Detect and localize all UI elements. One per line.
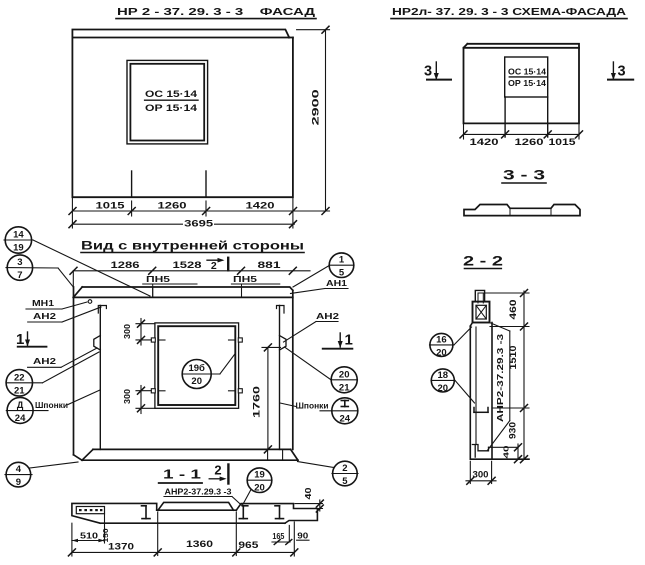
svg-text:Шпонки: Шпонки <box>296 401 329 411</box>
svg-text:ОС 15·14: ОС 15·14 <box>145 89 198 100</box>
svg-text:ПН5: ПН5 <box>233 274 257 284</box>
svg-text:21: 21 <box>14 385 25 396</box>
svg-text:3695: 3695 <box>184 219 214 230</box>
svg-text:20: 20 <box>254 483 265 494</box>
svg-text:Шпонки: Шпонки <box>35 400 68 410</box>
svg-text:ОР 15·14: ОР 15·14 <box>145 103 198 114</box>
svg-text:1420: 1420 <box>470 137 499 147</box>
svg-text:90: 90 <box>297 532 309 541</box>
svg-text:ОС 15·14: ОС 15·14 <box>508 67 546 77</box>
svg-text:24: 24 <box>15 413 26 424</box>
svg-text:ОР 15·14: ОР 15·14 <box>508 78 546 88</box>
svg-text:16: 16 <box>436 334 447 345</box>
svg-text:22: 22 <box>14 372 25 383</box>
svg-text:1260: 1260 <box>158 201 187 211</box>
svg-text:930: 930 <box>508 422 518 439</box>
svg-text:АНР2-37.29.3 -3: АНР2-37.29.3 -3 <box>495 334 505 422</box>
svg-text:1: 1 <box>345 332 353 349</box>
svg-text:9: 9 <box>16 477 21 488</box>
svg-text:1760: 1760 <box>252 386 262 418</box>
svg-text:АНР2-37.29.3 -3: АНР2-37.29.3 -3 <box>165 487 232 497</box>
svg-text:1420: 1420 <box>246 201 275 211</box>
svg-text:2: 2 <box>342 463 347 474</box>
svg-text:20: 20 <box>436 347 447 358</box>
svg-text:165: 165 <box>272 532 284 541</box>
svg-text:НР 2 - 37. 29. 3 - 3 ФАСАД: НР 2 - 37. 29. 3 - 3 ФАСАД <box>117 6 316 18</box>
svg-text:1 - 1: 1 - 1 <box>163 467 201 482</box>
svg-text:460: 460 <box>508 300 518 320</box>
svg-text:3: 3 <box>424 64 432 80</box>
svg-text:Д: Д <box>17 400 24 410</box>
svg-text:1260: 1260 <box>515 137 544 147</box>
svg-text:5: 5 <box>342 476 348 487</box>
svg-text:40: 40 <box>502 446 511 459</box>
svg-text:1360: 1360 <box>186 539 213 549</box>
svg-text:21: 21 <box>339 382 350 393</box>
svg-text:2 - 2: 2 - 2 <box>463 253 503 269</box>
svg-text:965: 965 <box>238 540 258 550</box>
svg-text:20: 20 <box>438 383 449 394</box>
svg-text:АН2: АН2 <box>316 311 339 321</box>
svg-text:2: 2 <box>211 260 217 272</box>
svg-text:2: 2 <box>214 463 221 478</box>
svg-text:ПН5: ПН5 <box>146 274 170 284</box>
svg-text:20: 20 <box>339 369 350 380</box>
svg-text:4: 4 <box>16 464 22 475</box>
svg-text:14: 14 <box>13 230 24 241</box>
svg-text:881: 881 <box>258 260 281 270</box>
svg-text:19: 19 <box>13 243 24 254</box>
svg-text:3: 3 <box>17 257 22 268</box>
svg-text:1528: 1528 <box>173 260 202 270</box>
svg-text:2900: 2900 <box>311 89 321 125</box>
svg-text:Вид с внутренней стороны: Вид с внутренней стороны <box>81 239 304 253</box>
svg-text:1015: 1015 <box>549 137 576 147</box>
svg-text:510: 510 <box>80 531 98 541</box>
svg-text:1: 1 <box>339 255 345 266</box>
svg-text:3: 3 <box>617 64 625 80</box>
svg-text:150: 150 <box>101 529 110 543</box>
svg-text:1015: 1015 <box>96 201 125 211</box>
svg-text:АН2: АН2 <box>33 356 56 366</box>
svg-text:19: 19 <box>254 470 265 481</box>
svg-text:АН2: АН2 <box>33 311 56 321</box>
svg-text:1286: 1286 <box>111 260 140 270</box>
svg-text:МН1: МН1 <box>32 298 54 308</box>
svg-text:1510: 1510 <box>508 346 518 370</box>
svg-text:19б: 19б <box>188 363 205 374</box>
svg-text:1: 1 <box>16 331 24 348</box>
svg-text:40: 40 <box>304 487 313 500</box>
svg-text:3 - 3: 3 - 3 <box>503 167 545 183</box>
svg-text:НР2л- 37. 29. 3 - 3 СХЕМА-ФА: НР2л- 37. 29. 3 - 3 СХЕМА-ФАСАДА <box>392 6 627 18</box>
svg-text:18: 18 <box>438 370 449 381</box>
svg-text:300: 300 <box>473 470 489 480</box>
svg-text:7: 7 <box>17 270 22 281</box>
svg-text:300: 300 <box>123 388 132 404</box>
svg-text:АН1: АН1 <box>326 278 347 288</box>
svg-text:20: 20 <box>191 376 202 387</box>
svg-text:300: 300 <box>123 323 132 339</box>
svg-text:1370: 1370 <box>108 542 134 552</box>
svg-text:24: 24 <box>340 413 351 424</box>
